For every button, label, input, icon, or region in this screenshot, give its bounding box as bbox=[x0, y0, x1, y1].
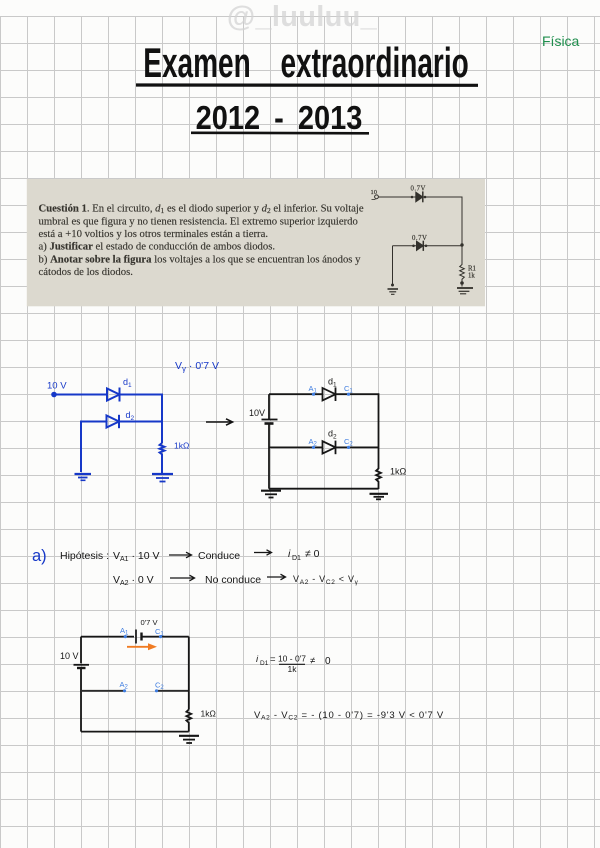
svg-text:VA1 · 10 V: VA1 · 10 V bbox=[113, 550, 160, 563]
svg-text:1kΩ: 1kΩ bbox=[390, 467, 407, 477]
svg-text:d2: d2 bbox=[126, 410, 135, 422]
svg-text:b) Anotar sobre la figura los: b) Anotar sobre la figura los voltajes a… bbox=[39, 253, 362, 265]
svg-text:D1: D1 bbox=[260, 660, 269, 667]
svg-text:1k: 1k bbox=[468, 273, 475, 280]
svg-text:Cuestión 1. En el circuito, d1: Cuestión 1. En el circuito, d1 es el dio… bbox=[39, 202, 364, 215]
svg-text:Hipótesis :: Hipótesis : bbox=[60, 550, 109, 562]
svg-text:0.7V: 0.7V bbox=[411, 186, 426, 193]
svg-text:VA2 - VC2 = - (10 - 0'7) = -: VA2 - VC2 = - (10 - 0'7) = -9'3 V < 0'7 … bbox=[254, 710, 444, 722]
svg-text:a) Justificar el estado de con: a) Justificar el estado de conducción de… bbox=[39, 240, 276, 252]
svg-text:0.7V: 0.7V bbox=[412, 235, 427, 242]
svg-text:cátodos de los diodos.: cátodos de los diodos. bbox=[39, 266, 133, 278]
svg-text:No conduce: No conduce bbox=[205, 574, 261, 586]
svg-text:A2: A2 bbox=[120, 680, 129, 691]
svg-text:1kΩ: 1kΩ bbox=[174, 441, 189, 451]
svg-text:≠ 0: ≠ 0 bbox=[305, 548, 320, 560]
svg-text:2012 - 2013: 2012 - 2013 bbox=[196, 99, 363, 136]
svg-text:R1: R1 bbox=[468, 266, 476, 273]
svg-text:10V: 10V bbox=[249, 408, 265, 418]
svg-text:d1: d1 bbox=[328, 377, 337, 389]
svg-text:Física: Física bbox=[542, 33, 580, 49]
svg-text:i: i bbox=[288, 548, 291, 560]
svg-text:A1: A1 bbox=[120, 626, 129, 637]
svg-text:está a +10 voltios y los otros: está a +10 voltios y los otros terminale… bbox=[39, 228, 269, 240]
svg-text:D1: D1 bbox=[292, 555, 301, 562]
svg-text:10 V: 10 V bbox=[47, 381, 67, 392]
svg-text:a): a) bbox=[32, 547, 47, 565]
svg-text:Examen extraordinario: Examen extraordinario bbox=[143, 39, 468, 86]
svg-text:VA2 · 0 V: VA2 · 0 V bbox=[113, 574, 154, 587]
svg-text:1k: 1k bbox=[288, 664, 298, 674]
svg-text:1kΩ: 1kΩ bbox=[201, 709, 216, 719]
svg-text:umbral es que figura y no tien: umbral es que figura y no tienen resiste… bbox=[39, 215, 358, 227]
svg-text:≠: ≠ bbox=[310, 656, 315, 667]
svg-text:=: = bbox=[270, 654, 276, 665]
svg-text:VA2 - VC2 < Vγ: VA2 - VC2 < Vγ bbox=[293, 574, 359, 586]
svg-text:d1: d1 bbox=[123, 377, 132, 389]
svg-text:Vγ · 0'7 V: Vγ · 0'7 V bbox=[175, 360, 219, 374]
svg-text:i: i bbox=[256, 654, 259, 665]
svg-text:@_luuluu_: @_luuluu_ bbox=[227, 1, 378, 33]
svg-text:d2: d2 bbox=[328, 429, 337, 441]
svg-text:10 V: 10 V bbox=[60, 651, 79, 661]
svg-text:Conduce: Conduce bbox=[198, 550, 240, 562]
svg-text:10 - 0'7: 10 - 0'7 bbox=[278, 654, 306, 664]
svg-text:0'7 V: 0'7 V bbox=[141, 618, 159, 627]
svg-text:0: 0 bbox=[325, 656, 331, 667]
